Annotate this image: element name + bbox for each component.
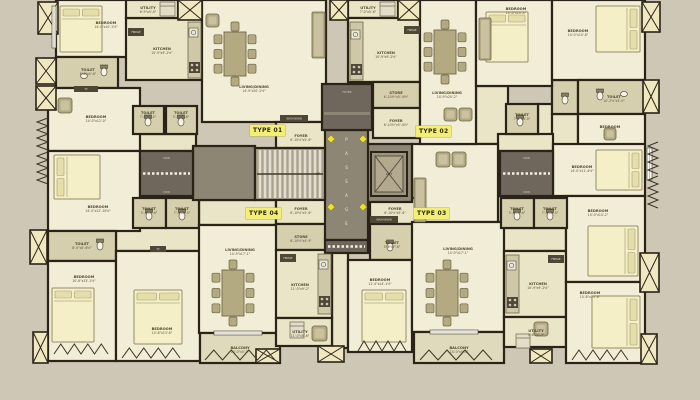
type-02-label: TYPE 02 (416, 126, 451, 137)
pillow (160, 293, 180, 300)
burner (321, 298, 324, 301)
chair-icon (248, 35, 256, 44)
burner (191, 64, 194, 67)
chair-icon (212, 289, 220, 298)
room-dims: 14'-0"x10'-0" (506, 11, 527, 15)
room-dims: 5'-6"x7'-6" (141, 211, 158, 215)
chair-icon (460, 304, 468, 313)
stair-landing (193, 146, 255, 200)
room-dims: 6'-10½"x5'-4½" (384, 123, 409, 127)
dining-table-icon (222, 270, 244, 316)
chair-icon (426, 289, 434, 298)
chair-icon (214, 64, 222, 73)
bar-label: FRIDGE (408, 29, 417, 32)
room-dims: 5'-6"x7'-6" (173, 115, 190, 119)
room-dims: 7'-2"x8'-0" (514, 117, 531, 121)
sink-icon (351, 30, 360, 39)
passage-letter: G (345, 207, 348, 212)
burner (353, 66, 356, 69)
armchair-seat (439, 155, 448, 165)
chair-icon (424, 33, 432, 42)
room-dims: 14'-9"x17'-1" (448, 251, 469, 255)
burner (514, 299, 517, 302)
burner (514, 304, 517, 307)
burner (358, 71, 361, 74)
room-dims: 14'-0"x10'-1½" (94, 25, 118, 29)
chair-icon (214, 35, 222, 44)
burner (326, 303, 329, 306)
chair-icon (424, 48, 432, 57)
armchair-seat (209, 17, 217, 25)
armchair-seat (455, 155, 464, 165)
pillow (630, 31, 637, 50)
pillow (386, 293, 404, 300)
pillow (75, 291, 92, 298)
lobby-label: FOYER (342, 90, 351, 94)
chair-icon (441, 20, 449, 29)
pillow (632, 172, 639, 188)
chair-icon (443, 260, 451, 269)
passage-letter: A (345, 151, 348, 156)
room-dims: 7'-0"x5'-0" (174, 211, 191, 215)
pillow (489, 15, 506, 22)
room-dims: 11'-0"x5'-6" (291, 334, 310, 338)
room-dims: 11'-0"x9'-2" (291, 287, 310, 291)
pillow (57, 158, 64, 176)
bar-label: FRIDGE (552, 258, 561, 261)
type-04-label: TYPE 04 (246, 208, 281, 219)
chair-icon (246, 273, 254, 282)
chair-icon (231, 77, 239, 86)
room-dims: 14'-0"x14'-2" (588, 213, 609, 217)
void-label: VOID (163, 156, 170, 160)
room-dims: 10'-2½"x5'-0" (603, 99, 625, 103)
armchair-seat (462, 111, 470, 119)
pillow (137, 293, 157, 300)
stove-icon (189, 62, 200, 73)
toilet-icon (101, 68, 107, 76)
room-dims: 7'-0"x5'-6" (360, 10, 377, 14)
pillow (83, 9, 100, 16)
room-dims: 5'-6"x7'-6" (509, 211, 526, 215)
pillow (55, 291, 72, 298)
chair-icon (231, 22, 239, 31)
room-dims: 14'-0"x12'-10½" (85, 209, 111, 213)
room-dims: 8'-0"x5'-6½" (72, 246, 92, 250)
burner (326, 298, 329, 301)
chair-icon (212, 304, 220, 313)
bar-label: WASH BASIN (286, 118, 301, 121)
burner (353, 71, 356, 74)
lift-label: LIFT (386, 172, 392, 176)
chair-icon (460, 273, 468, 282)
appliance-icon (160, 2, 175, 16)
room-area (498, 134, 553, 151)
bar-label: TV (156, 248, 159, 251)
burner (196, 64, 199, 67)
room-dims: 6'-10½"x4'-9" (290, 239, 312, 243)
room-dims: 14'-9"x20'-2" (437, 95, 458, 99)
type-01-label: TYPE 01 (250, 125, 285, 136)
room-dims: 6'-10½"x5'-6" (384, 211, 406, 215)
room-dims: 6'-9"x5'-6" (140, 10, 157, 14)
room-area (133, 134, 196, 151)
room-dims: 5'-6"x4'-9" (528, 333, 545, 337)
void-label: VOID (523, 156, 530, 160)
void-label: VOID (523, 190, 530, 194)
room-dims: 7'-0"x5'-0" (542, 211, 559, 215)
burner (509, 304, 512, 307)
chair-icon (424, 62, 432, 71)
stove-icon (507, 297, 518, 308)
room-dims: 14'-9"x17'-1" (230, 252, 251, 256)
stove-icon (319, 296, 330, 307)
burner (509, 299, 512, 302)
burner (196, 69, 199, 72)
chair-icon (246, 304, 254, 313)
appliance-icon (380, 2, 395, 16)
room-dims: 10'-8"x13'-8" (580, 295, 601, 299)
room-dims: 14'-0"x12'-0" (86, 119, 107, 123)
pillow (509, 15, 526, 22)
pillow (628, 253, 635, 274)
room-dims: 10'-9"x9'-2½" (527, 286, 549, 290)
bar-label: TV (84, 88, 87, 91)
room-dims: 14'-9"x20'-2½" (242, 89, 266, 93)
passage-letter: S (345, 179, 348, 184)
room-dims: 6'-10½"x5'-6" (290, 211, 312, 215)
room-dims: 8'-0"x5'-6" (80, 72, 97, 76)
chair-icon (458, 33, 466, 42)
chair-icon (460, 289, 468, 298)
room-dims: 6'-10½"x5'-6" (290, 138, 312, 142)
chair-icon (212, 273, 220, 282)
armchair-seat (315, 329, 325, 339)
room-dims: 5'-6"x7'-6" (384, 245, 401, 249)
room-dims: 6'-10½"x5'-4½" (384, 95, 409, 99)
sink-icon (319, 260, 328, 269)
sink-icon (189, 28, 198, 37)
dining-table-icon (434, 30, 456, 74)
pillow (57, 179, 64, 197)
bar-label: WASH BASIN (376, 219, 391, 222)
chair-icon (229, 260, 237, 269)
chair-icon (229, 317, 237, 326)
room-dims: 10'-6"x13'-1½" (72, 279, 96, 283)
void-label: VOID (163, 190, 170, 194)
floor-plan: PASSAGEFOYERVOIDVOIDVOIDVOIDUPLIFTFRIDGE… (0, 0, 700, 400)
room-dims: 11'-4"x14'-1½" (368, 282, 392, 286)
bar-label: FRIDGE (284, 257, 293, 260)
armchair-seat (607, 131, 614, 138)
dining-table-icon (224, 32, 246, 76)
passage-letter: A (345, 193, 348, 198)
pillow (628, 229, 635, 250)
chair-icon (248, 64, 256, 73)
chair-icon (214, 50, 222, 59)
sink-icon (507, 261, 516, 270)
room-area (501, 228, 566, 251)
chair-icon (248, 50, 256, 59)
pillow (630, 9, 637, 28)
room-living-dining (202, 0, 326, 122)
pillow (63, 9, 80, 16)
room-dims: 10'-8"x13'-8" (152, 331, 173, 335)
sofa-cushion (314, 14, 323, 56)
type-03-label: TYPE 03 (414, 208, 449, 219)
armchair-seat (61, 101, 70, 111)
burner (321, 303, 324, 306)
room-label: BEDROOM (600, 125, 621, 129)
toilet-icon (597, 92, 603, 100)
room-dims: 14'-0"x5'-0" (450, 350, 469, 354)
room-dims: 10'-9"x9'-2½" (375, 55, 397, 59)
room-dims: 14'-0"x10'-8" (568, 33, 589, 37)
pillow (632, 153, 639, 169)
chair-icon (426, 273, 434, 282)
lobby-seam (324, 112, 370, 115)
washbasin-icon (621, 91, 628, 96)
chair-icon (441, 75, 449, 84)
bar-label: FRIDGE (132, 31, 141, 34)
stairs-up-label: UP (316, 172, 320, 176)
pillow (630, 299, 637, 321)
room-dims: 10'-9"x9'-2½" (151, 51, 173, 55)
room-dims: 14'-0"x5'-0" (231, 350, 250, 354)
pillow (365, 293, 383, 300)
chair-icon (443, 317, 451, 326)
chair-icon (458, 62, 466, 71)
armchair-seat (447, 111, 455, 119)
chair-icon (458, 48, 466, 57)
burner (191, 69, 194, 72)
sofa-cushion (481, 20, 489, 58)
burner (358, 66, 361, 69)
floor-plan-svg: PASSAGEFOYERVOIDVOIDVOIDVOIDUPLIFTFRIDGE… (0, 0, 700, 400)
room-area (332, 252, 348, 348)
stove-icon (351, 64, 362, 75)
room-dims: 7'-0"x5'-0" (140, 115, 157, 119)
passage-letter: S (345, 165, 348, 170)
chair-icon (426, 304, 434, 313)
toilet-icon (562, 96, 568, 104)
room-dims: 14'-0"x11'-4½" (570, 169, 594, 173)
toilet-icon (97, 242, 103, 250)
pillow (630, 324, 637, 346)
chair-icon (246, 289, 254, 298)
dining-table-icon (436, 270, 458, 316)
